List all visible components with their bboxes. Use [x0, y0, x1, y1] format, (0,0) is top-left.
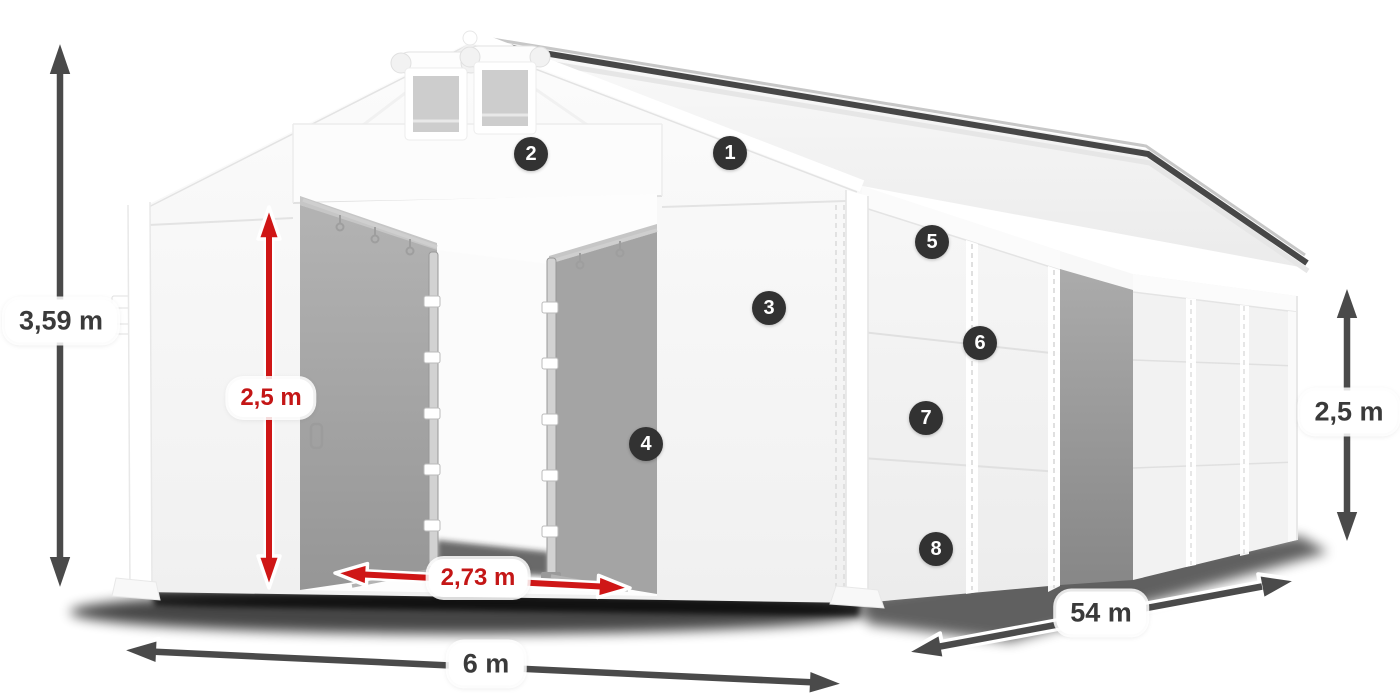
callout-1[interactable]: 1: [713, 136, 747, 170]
label-width: 6 m: [449, 643, 524, 686]
callout-3[interactable]: 3: [752, 291, 786, 325]
tent-illustration: [0, 0, 1400, 700]
label-entrance-height: 2,5 m: [228, 379, 313, 417]
label-length: 54 m: [1056, 592, 1146, 635]
callout-8[interactable]: 8: [919, 532, 953, 566]
tent-dimensions-diagram: 3,59 m 2,5 m 2,73 m 6 m 54 m 2,5 m 1 2 3…: [0, 0, 1400, 700]
callout-4[interactable]: 4: [629, 427, 663, 461]
doorway: [300, 194, 657, 596]
label-entrance-width: 2,73 m: [429, 559, 528, 597]
label-side-height: 2,5 m: [1300, 391, 1397, 434]
callout-5[interactable]: 5: [915, 225, 949, 259]
inner-curtain-right: [549, 232, 657, 594]
inner-curtain-left: [300, 205, 437, 590]
callout-2[interactable]: 2: [514, 137, 548, 171]
label-total-height: 3,59 m: [5, 300, 117, 343]
vent-window-right: [460, 46, 550, 134]
callout-7[interactable]: 7: [909, 401, 943, 435]
side-door-opening: [1060, 269, 1133, 585]
callout-6[interactable]: 6: [963, 326, 997, 360]
door-header-beam: [293, 124, 662, 203]
